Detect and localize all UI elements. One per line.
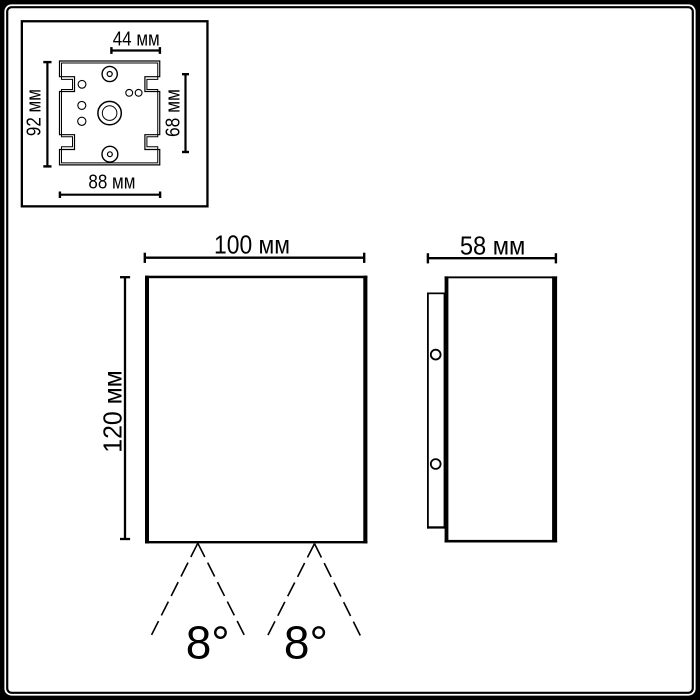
svg-text:92 мм: 92 мм bbox=[24, 89, 46, 136]
svg-text:44 мм: 44 мм bbox=[113, 28, 160, 50]
svg-text:58 мм: 58 мм bbox=[460, 230, 526, 260]
svg-text:8°: 8° bbox=[186, 617, 230, 669]
svg-text:100 мм: 100 мм bbox=[214, 229, 290, 259]
svg-text:88 мм: 88 мм bbox=[88, 172, 135, 194]
svg-text:120 мм: 120 мм bbox=[98, 370, 128, 453]
svg-text:68 мм: 68 мм bbox=[163, 89, 185, 137]
svg-text:8°: 8° bbox=[284, 617, 328, 669]
